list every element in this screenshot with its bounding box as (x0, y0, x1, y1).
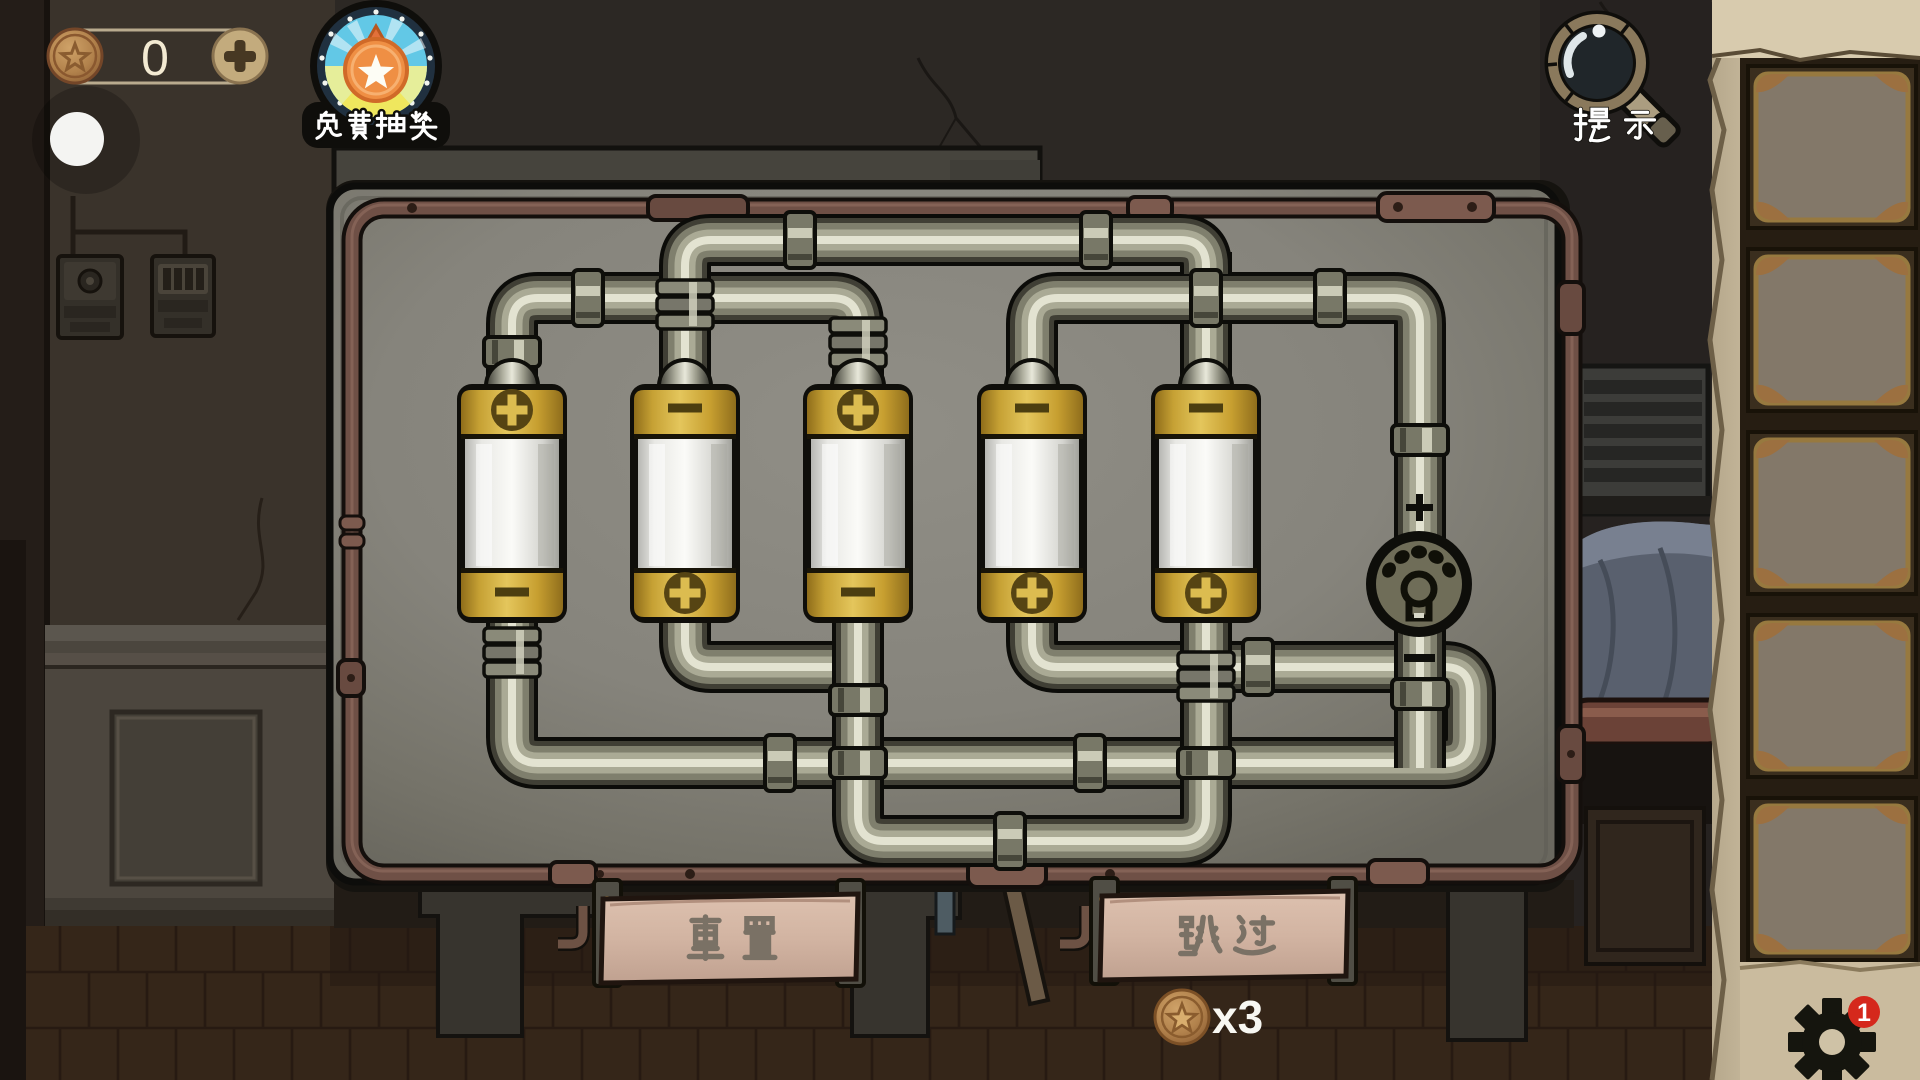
svg-text:x3: x3 (1212, 991, 1263, 1043)
svg-text:1: 1 (1857, 999, 1871, 1027)
svg-text:0: 0 (141, 30, 169, 86)
